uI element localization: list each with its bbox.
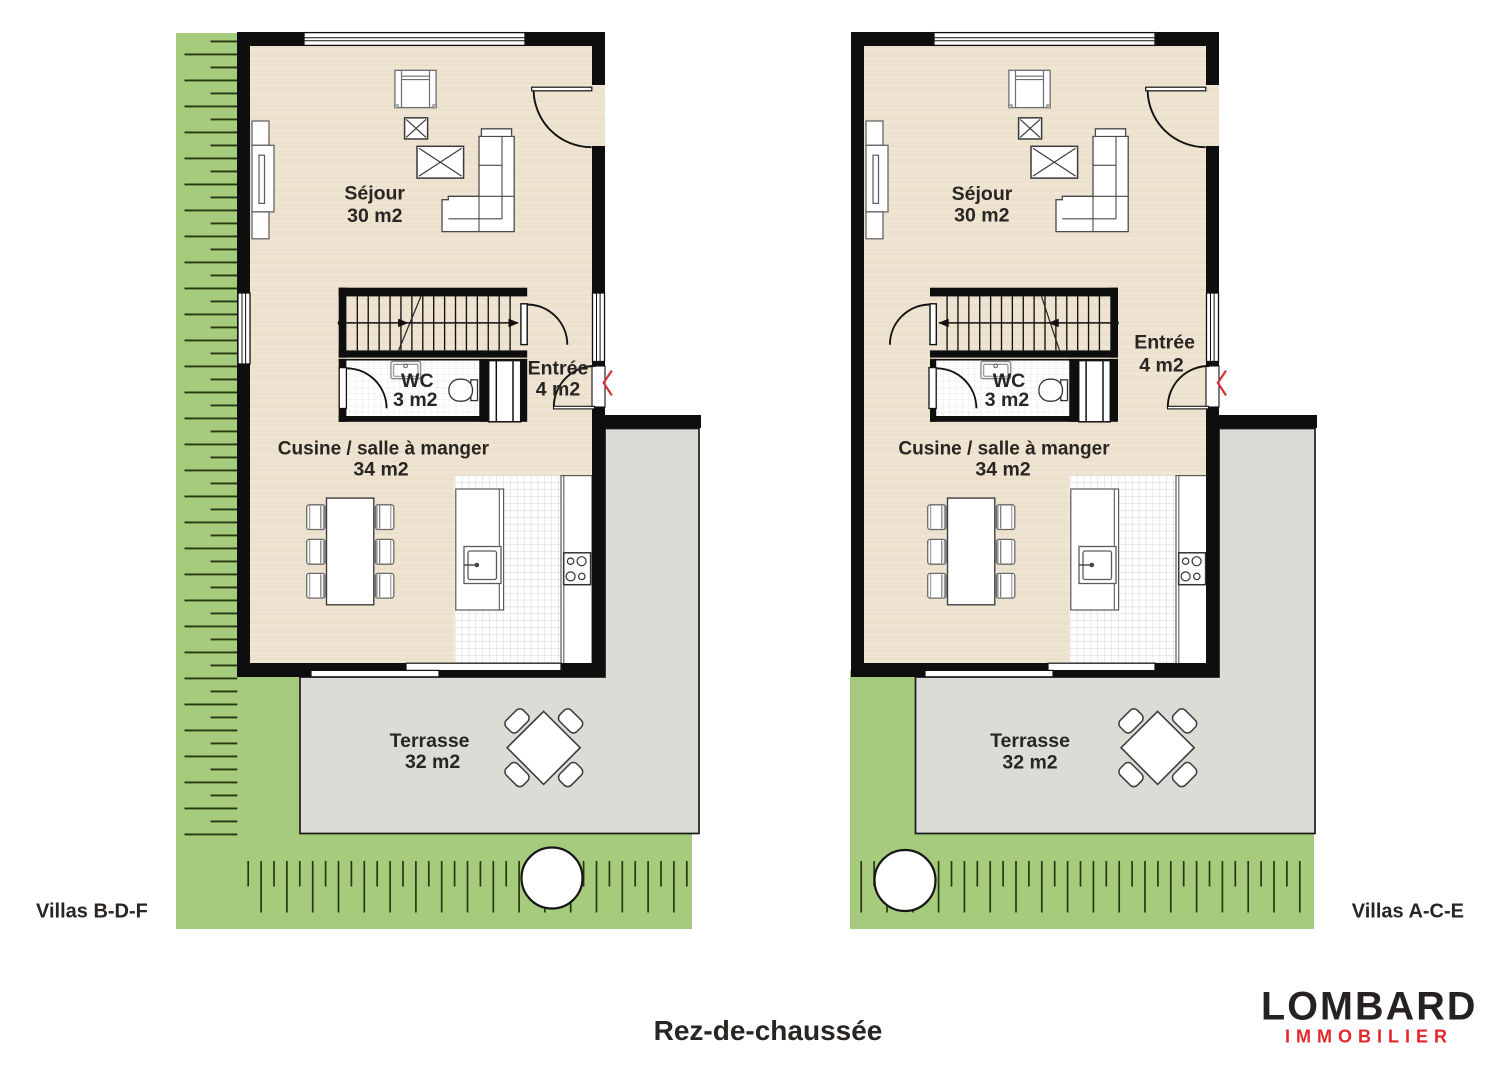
- svg-text:3 m2: 3 m2: [393, 389, 438, 411]
- svg-text:Séjour: Séjour: [952, 183, 1013, 205]
- svg-text:32 m2: 32 m2: [405, 751, 460, 773]
- svg-text:Terrasse: Terrasse: [990, 730, 1070, 752]
- svg-text:Entrée: Entrée: [1134, 332, 1195, 354]
- svg-text:IMMOBILIER: IMMOBILIER: [1285, 1027, 1453, 1047]
- svg-text:30 m2: 30 m2: [347, 205, 402, 227]
- svg-text:Cusine / salle à manger: Cusine / salle à manger: [898, 439, 1110, 460]
- svg-text:34 m2: 34 m2: [975, 459, 1030, 481]
- svg-text:30 m2: 30 m2: [954, 204, 1009, 226]
- svg-text:Villas A-C-E: Villas A-C-E: [1352, 901, 1464, 923]
- svg-text:34 m2: 34 m2: [353, 459, 408, 481]
- svg-text:Rez-de-chaussée: Rez-de-chaussée: [654, 1015, 883, 1046]
- svg-text:4 m2: 4 m2: [1139, 355, 1184, 377]
- svg-text:Entrée: Entrée: [528, 358, 589, 380]
- svg-text:Villas B-D-F: Villas B-D-F: [36, 901, 148, 923]
- svg-text:4 m2: 4 m2: [536, 379, 581, 401]
- svg-text:3 m2: 3 m2: [985, 389, 1030, 411]
- svg-text:Séjour: Séjour: [344, 182, 405, 204]
- svg-text:LOMBARD: LOMBARD: [1261, 985, 1478, 1029]
- svg-text:Terrasse: Terrasse: [390, 730, 470, 752]
- svg-text:32 m2: 32 m2: [1002, 752, 1057, 774]
- svg-text:Cusine / salle à manger: Cusine / salle à manger: [278, 439, 490, 460]
